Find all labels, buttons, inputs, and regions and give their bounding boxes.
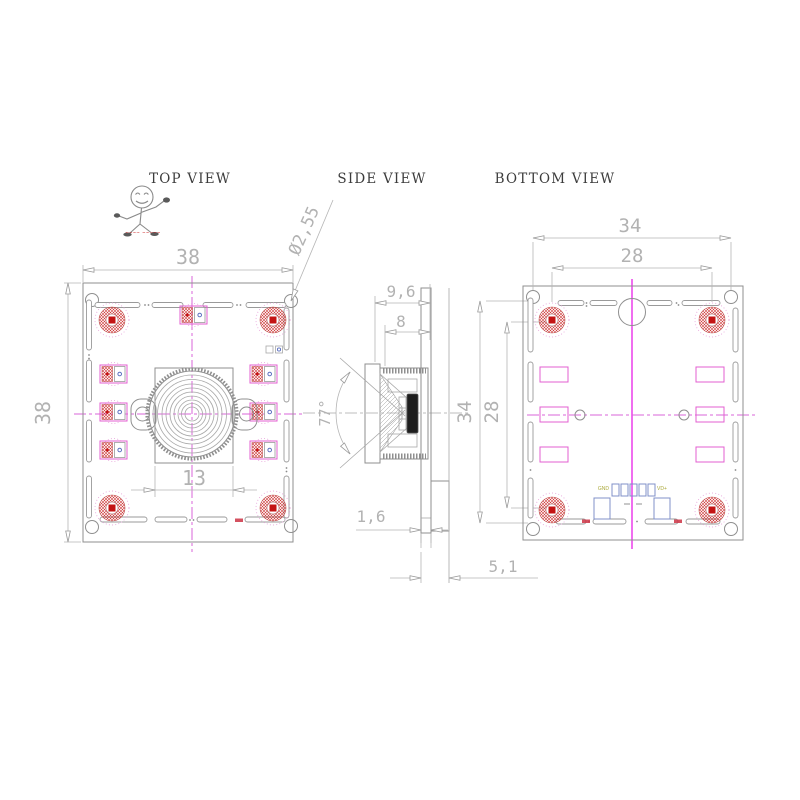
dim-fov: 77° [316, 399, 334, 426]
dim-pcb-thickness: 1,6 [357, 507, 386, 526]
logo-caption: ~~~~ ~~~~~ [125, 231, 160, 237]
top-view-title: TOP VIEW [149, 171, 231, 187]
dim-top-width: 38 [176, 245, 200, 269]
bottom-view-title: BOTTOM VIEW [495, 171, 616, 187]
silkscreen-gnd-label: GND [598, 486, 610, 492]
dim-depth-lens: 8 [396, 312, 406, 331]
dim-lens-base: 13 [182, 466, 206, 490]
bottom-view: GND VD+ 34 28 [523, 215, 758, 549]
dim-rear-height: 5,1 [489, 557, 518, 576]
dim-bottom-hole-span-v: 28 [481, 401, 503, 424]
logo-stick-figure: ~~~~ ~~~~~ [114, 186, 170, 237]
side-view: 77° 9,6 8 1,6 5,1 [303, 282, 538, 583]
technical-drawing: ~~~~ ~~~~~ TOP VIEW SIDE VIEW BOTTOM VIE… [0, 0, 800, 800]
dim-top-height: 38 [31, 401, 55, 425]
dim-hole-diameter: Ø2,55 [285, 204, 324, 259]
silkscreen-vcc-label: VD+ [657, 486, 667, 492]
dim-bottom-hole-span-h: 28 [621, 245, 644, 267]
drawing-sheet: ~~~~ ~~~~~ TOP VIEW SIDE VIEW BOTTOM VIE… [0, 0, 800, 800]
top-view: 38 38 13 Ø2,55 [31, 200, 333, 552]
dim-bottom-corner-span-h: 34 [619, 215, 642, 237]
side-view-title: SIDE VIEW [337, 171, 426, 187]
dim-depth-total: 9,6 [387, 282, 416, 301]
dim-bottom-corner-span-v: 34 [454, 401, 476, 424]
